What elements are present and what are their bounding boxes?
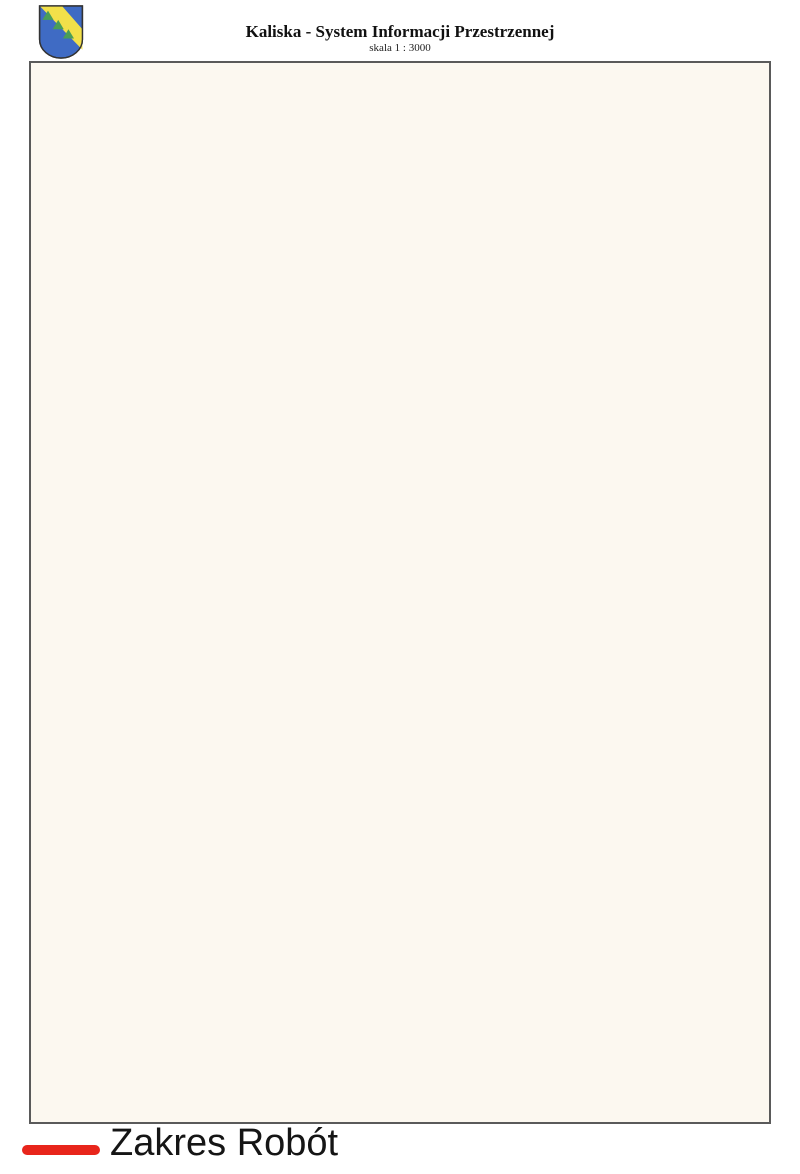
work-zone-legend-line (22, 1145, 100, 1155)
work-zone-legend-label: Zakres Robót (110, 1122, 338, 1165)
legend: Zakres Robót (0, 1124, 800, 1174)
map-canvas[interactable]: 387/13266/4387/12387/11288289387/21280/1… (0, 0, 800, 1174)
